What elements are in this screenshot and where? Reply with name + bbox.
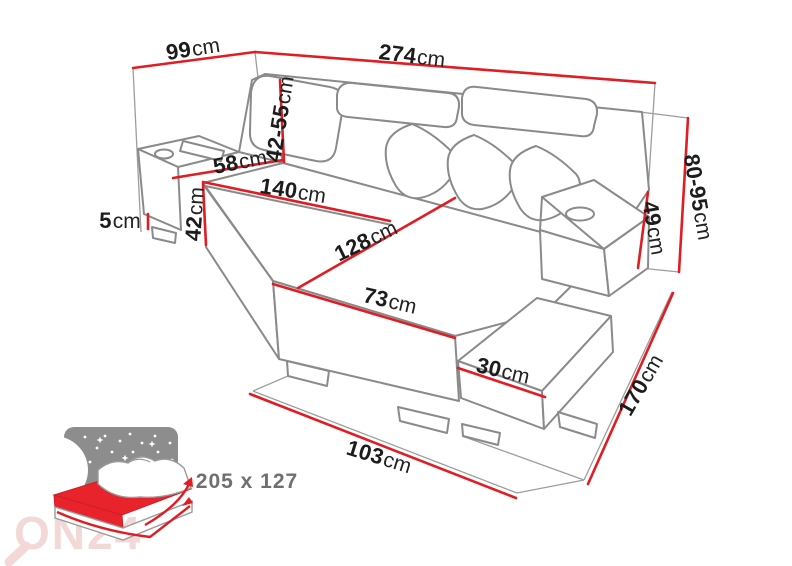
- dimension-label-5: 5cm: [99, 210, 141, 232]
- dimension-value: 42: [180, 215, 207, 242]
- dimension-label-42: 42cm: [182, 186, 208, 241]
- dimension-value: 5: [99, 208, 112, 233]
- magnifier-handle-icon: [9, 546, 26, 562]
- dimension-unit: cm: [113, 210, 141, 233]
- dimension-value: 49: [637, 199, 666, 228]
- right-cupholder-icon: [566, 208, 594, 221]
- floor-under-ottoman: [462, 436, 584, 480]
- sofa-illustration: [138, 74, 649, 445]
- diagram-artwork: ON24: [0, 0, 792, 566]
- dimension-unit: cm: [272, 74, 299, 105]
- dimension-value: 58: [211, 150, 240, 179]
- dimension-value: 99: [164, 36, 193, 65]
- sofa-foot-3: [462, 424, 500, 445]
- dimension-unit: cm: [689, 210, 717, 242]
- dimension-unit: cm: [184, 186, 209, 216]
- dimension-unit: cm: [642, 225, 670, 257]
- sofa-ottoman-foot: [558, 412, 597, 438]
- guide-back-corner: [255, 52, 258, 78]
- dimension-unit: cm: [190, 34, 221, 61]
- sleeping-area-size-label: 205 x 127: [196, 470, 298, 494]
- sofa-foot-2: [398, 407, 449, 433]
- dimension-unit: cm: [296, 181, 327, 208]
- bed-blanket: [98, 457, 191, 498]
- dimension-unit: cm: [416, 46, 447, 72]
- dimension-value: 274: [377, 39, 417, 68]
- sofa-dimension-diagram: ON24: [0, 0, 792, 566]
- sofa-left-armrest-foot: [152, 227, 176, 243]
- guide-right-vertical: [648, 83, 655, 192]
- guide-top-right-extension: [640, 112, 688, 118]
